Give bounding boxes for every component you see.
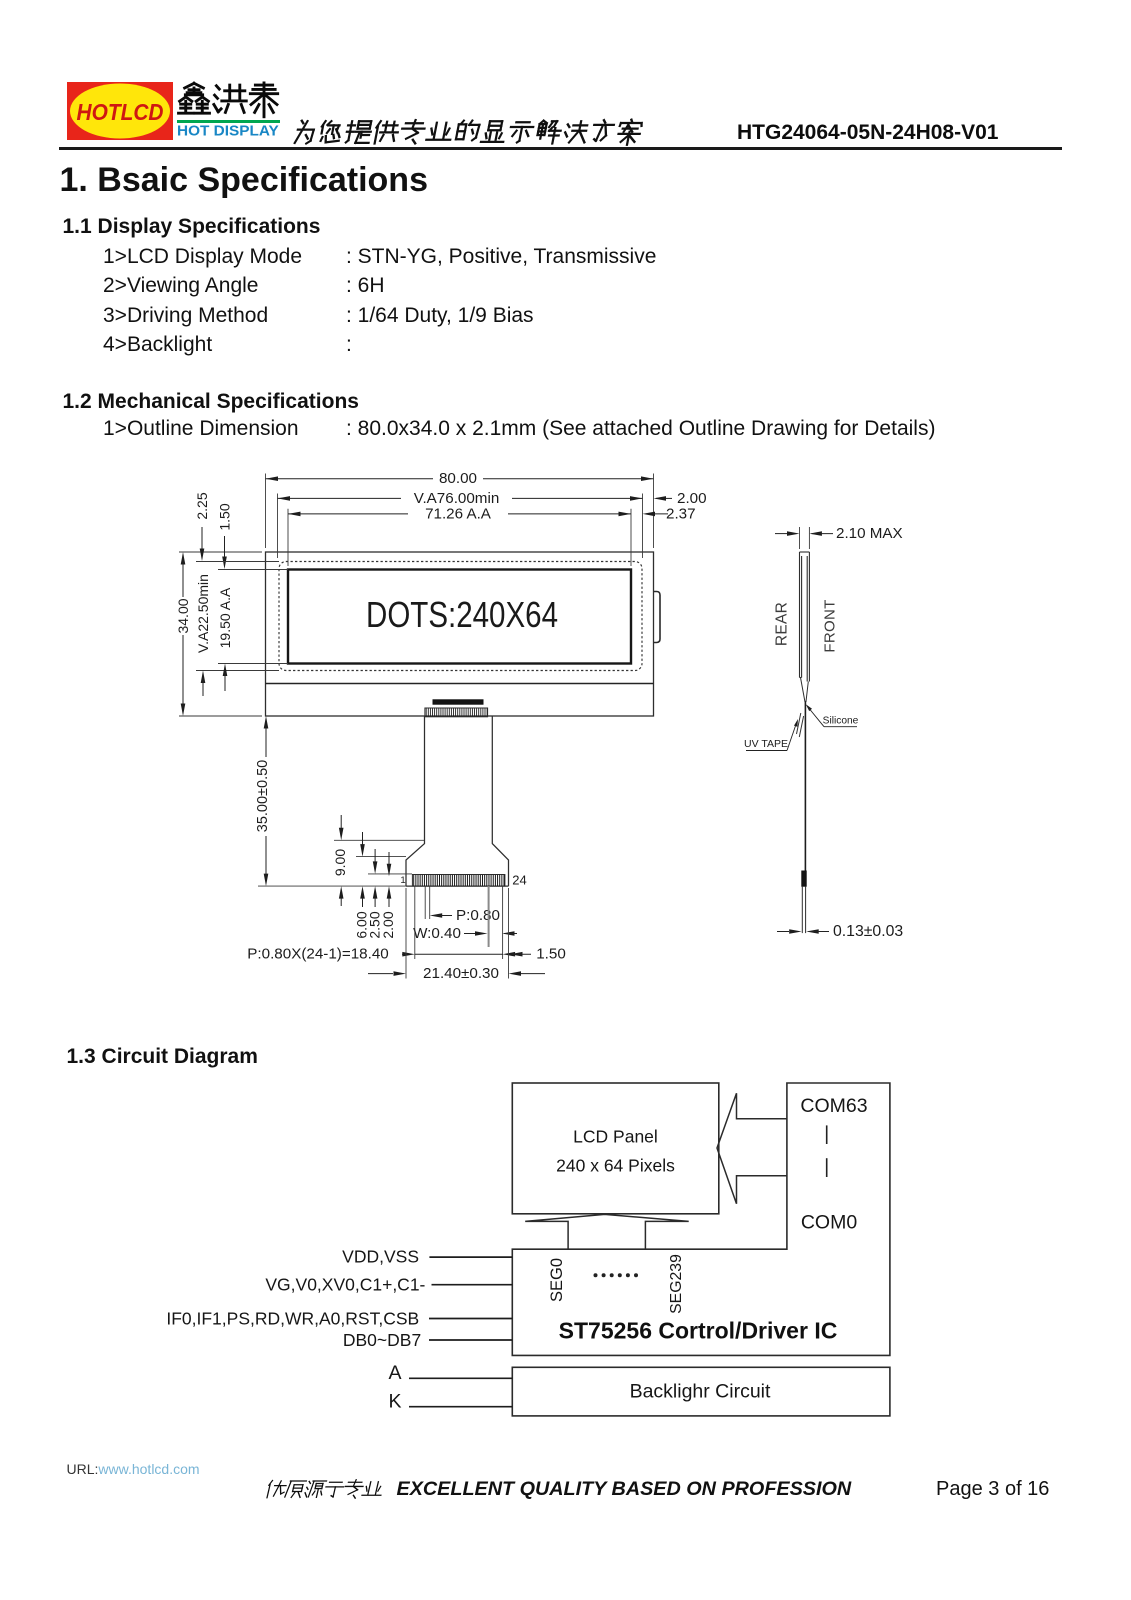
svg-text:240 x 64 Pixels: 240 x 64 Pixels [556, 1156, 675, 1176]
svg-text:2.10 MAX: 2.10 MAX [836, 525, 903, 542]
svg-text:UV TAPE: UV TAPE [744, 738, 788, 750]
svg-text:1.50: 1.50 [536, 946, 566, 963]
svg-text:V.A76.00min: V.A76.00min [414, 490, 500, 507]
svg-text:71.26 A.A: 71.26 A.A [425, 505, 492, 522]
svg-text:COM63: COM63 [800, 1095, 867, 1117]
svg-text:1: 1 [400, 875, 405, 886]
svg-text:2.00: 2.00 [380, 911, 396, 938]
svg-text:P:0.80: P:0.80 [456, 907, 500, 924]
svg-text:19.50 A.A: 19.50 A.A [217, 587, 233, 648]
svg-text:Backlighr Circuit: Backlighr Circuit [630, 1380, 771, 1402]
svg-text:FRONT: FRONT [822, 599, 839, 652]
svg-text:1.50: 1.50 [217, 503, 233, 530]
svg-text:2.00: 2.00 [677, 490, 707, 507]
svg-text:VDD,VSS: VDD,VSS [342, 1246, 419, 1266]
svg-text:ST75256 Cortrol/Driver IC: ST75256 Cortrol/Driver IC [559, 1318, 838, 1344]
svg-text:P:0.80X(24-1)=18.40: P:0.80X(24-1)=18.40 [247, 946, 388, 963]
svg-text:DB0~DB7: DB0~DB7 [343, 1330, 421, 1350]
svg-text:80.00: 80.00 [439, 470, 477, 487]
svg-text:SEG0: SEG0 [548, 1258, 566, 1302]
svg-text:W:0.40: W:0.40 [413, 925, 461, 942]
svg-text:2.37: 2.37 [666, 505, 696, 522]
svg-text:A: A [388, 1362, 401, 1384]
svg-text:DOTS:240X64: DOTS:240X64 [366, 594, 558, 635]
svg-text:IF0,IF1,PS,RD,WR,A0,RST,CSB: IF0,IF1,PS,RD,WR,A0,RST,CSB [166, 1309, 419, 1329]
svg-text:24: 24 [512, 873, 526, 888]
svg-text:0.13±0.03: 0.13±0.03 [833, 923, 903, 940]
svg-text:SEG239: SEG239 [668, 1254, 685, 1314]
svg-text:34.00: 34.00 [175, 598, 191, 633]
svg-text:COM0: COM0 [801, 1212, 857, 1234]
svg-text:REAR: REAR [774, 602, 791, 646]
svg-text:9.00: 9.00 [332, 849, 348, 876]
svg-text:LCD Panel: LCD Panel [573, 1127, 658, 1147]
svg-text:VG,V0,XV0,C1+,C1-: VG,V0,XV0,C1+,C1- [265, 1275, 425, 1295]
svg-text:K: K [388, 1391, 401, 1413]
svg-text:21.40±0.30: 21.40±0.30 [423, 965, 499, 982]
svg-text:2.25: 2.25 [194, 492, 210, 519]
svg-text:Silicone: Silicone [823, 716, 859, 727]
svg-text:35.00±0.50: 35.00±0.50 [255, 760, 271, 832]
svg-text:V.A22.50min: V.A22.50min [195, 574, 211, 653]
